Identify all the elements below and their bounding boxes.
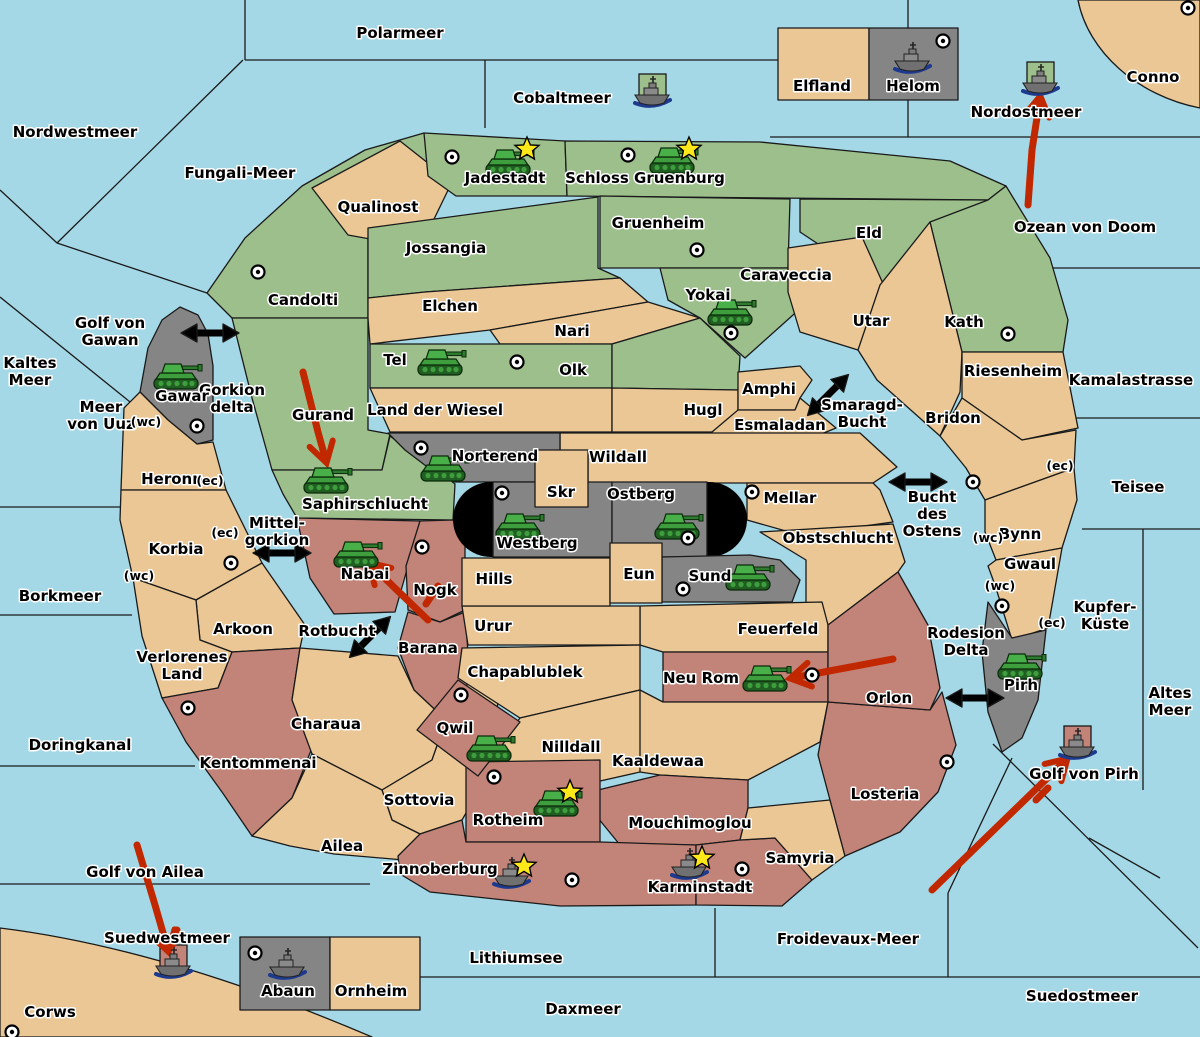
label-utar: Utar — [853, 312, 890, 330]
label-chapablublek: Chapablublek — [467, 663, 583, 681]
label-westberg: Westberg — [496, 534, 577, 552]
label-kamalastrasse: Kamalastrasse — [1069, 371, 1193, 389]
label-barana: Barana — [398, 639, 458, 657]
label-hugl: Hugl — [683, 401, 722, 419]
coast-tag: (ec) — [1046, 458, 1073, 473]
city-marker-icon-nogk — [416, 541, 429, 554]
label-kaaldewaa: Kaaldewaa — [612, 752, 704, 770]
city-marker-icon-gruenheim — [691, 244, 704, 257]
label-mellar: Mellar — [764, 489, 818, 507]
label-froidevaux_meer: Froidevaux-Meer — [777, 930, 920, 948]
label-altes_meer: AltesMeer — [1148, 684, 1191, 719]
label-samyria: Samyria — [766, 849, 835, 867]
label-karminstadt: Karminstadt — [648, 878, 753, 896]
city-marker-icon-neu_rom — [806, 669, 819, 682]
label-golf_von_ailea: Golf von Ailea — [86, 863, 204, 881]
label-suedwestmeer: Suedwestmeer — [104, 929, 230, 947]
city-marker-icon-bridon — [967, 476, 980, 489]
label-mouchimoglou: Mouchimoglou — [628, 814, 751, 832]
city-marker-icon-sund — [677, 583, 690, 596]
city-marker-icon-kentommenai — [182, 702, 195, 715]
label-schloss_gruenburg: Schloss Gruenburg — [565, 169, 725, 187]
label-lithiumsee: Lithiumsee — [469, 949, 562, 967]
label-fungali_meer: Fungali-Meer — [185, 164, 296, 182]
label-conno: Conno — [1127, 68, 1180, 86]
label-skr: Skr — [547, 483, 576, 501]
coast-tag: (ec) — [211, 525, 238, 540]
city-marker-icon-kath — [1002, 328, 1015, 341]
label-norterend: Norterend — [452, 447, 539, 465]
label-bynn: Bynn — [999, 525, 1042, 543]
label-esmaladan: Esmaladan — [734, 416, 826, 434]
label-nogk: Nogk — [413, 581, 458, 599]
city-marker-icon-corws — [6, 1026, 19, 1037]
label-wildall: Wildall — [589, 448, 647, 466]
coast-tag: (wc) — [985, 578, 1015, 593]
coast-tag: (wc) — [131, 414, 161, 429]
label-feuerfeld: Feuerfeld — [738, 620, 819, 638]
territory-rotheim[interactable] — [466, 760, 600, 842]
label-mittel_gorkion: Mittel-gorkion — [245, 514, 310, 549]
label-candolti: Candolti — [268, 291, 338, 309]
label-charaua: Charaua — [291, 715, 361, 733]
label-sottovia: Sottovia — [384, 791, 455, 809]
label-amphi: Amphi — [742, 380, 796, 398]
city-marker-icon-abaun — [249, 947, 262, 960]
city-marker-icon-karminstadt — [736, 863, 749, 876]
label-losteria: Losteria — [851, 785, 920, 803]
game-map: PolarmeerCobaltmeerNordwestmeerFungali-M… — [0, 0, 1200, 1037]
label-golf_von_pirh: Golf von Pirh — [1029, 765, 1139, 783]
label-elchen: Elchen — [422, 297, 478, 315]
label-ornheim: Ornheim — [335, 982, 407, 1000]
label-bridon: Bridon — [925, 409, 981, 427]
label-nilldall: Nilldall — [541, 738, 600, 756]
label-rotheim: Rotheim — [473, 811, 544, 829]
label-riesenheim: Riesenheim — [964, 362, 1062, 380]
label-kaltes_meer: KaltesMeer — [3, 354, 56, 389]
label-teisee: Teisee — [1112, 478, 1165, 496]
label-arkoon: Arkoon — [213, 620, 273, 638]
label-corws: Corws — [24, 1003, 76, 1021]
city-marker-icon-korbia — [225, 557, 238, 570]
label-gwaul: Gwaul — [1004, 555, 1056, 573]
label-jossangia: Jossangia — [405, 239, 487, 257]
city-marker-icon-pirh — [996, 600, 1009, 613]
label-eld: Eld — [856, 224, 882, 242]
label-yokai: Yokai — [684, 286, 730, 304]
label-caraveccia: Caraveccia — [740, 266, 832, 284]
label-tel: Tel — [383, 351, 407, 369]
label-qualinost: Qualinost — [338, 198, 419, 216]
city-marker-icon-jadestadt — [446, 151, 459, 164]
coast-tag: (ec) — [1038, 615, 1065, 630]
label-kupfer_kueste: Kupfer-Küste — [1073, 598, 1136, 633]
label-cobaltmeer: Cobaltmeer — [513, 89, 611, 107]
label-borkmeer: Borkmeer — [19, 587, 102, 605]
label-nabai: Nabai — [341, 565, 390, 583]
label-elfland: Elfland — [793, 77, 851, 95]
city-marker-icon-norterend — [415, 442, 428, 455]
label-korbia: Korbia — [148, 540, 203, 558]
label-jadestadt: Jadestadt — [464, 169, 546, 187]
city-marker-icon-qwil — [455, 689, 468, 702]
label-nordostmeer: Nordostmeer — [971, 103, 1082, 121]
label-pirh: Pirh — [1004, 676, 1038, 694]
label-qwil: Qwil — [437, 719, 474, 737]
label-urur: Urur — [474, 617, 512, 635]
city-marker-icon-mellar — [746, 486, 759, 499]
label-suedostmeer: Suedostmeer — [1026, 987, 1139, 1005]
city-marker-icon-westberg — [496, 487, 509, 500]
label-orlon: Orlon — [866, 689, 912, 707]
label-doringkanal: Doringkanal — [29, 736, 132, 754]
label-polarmeer: Polarmeer — [356, 24, 444, 42]
label-eun: Eun — [623, 565, 655, 583]
label-golf_von_gawan: Golf vonGawan — [75, 314, 145, 349]
label-ozean_von_doom: Ozean von Doom — [1014, 218, 1156, 236]
coast-tag: (wc) — [973, 530, 1003, 545]
label-olk: Olk — [559, 361, 588, 379]
label-nari: Nari — [554, 322, 589, 340]
city-marker-icon-ostberg — [682, 532, 695, 545]
territory-mouchimoglou[interactable] — [598, 775, 748, 845]
coast-tag: (wc) — [124, 568, 154, 583]
label-ostberg: Ostberg — [607, 485, 675, 503]
label-daxmeer: Daxmeer — [545, 1000, 621, 1018]
label-heronn: Heronn — [141, 470, 203, 488]
label-kath: Kath — [944, 313, 984, 331]
label-saphirschlucht: Saphirschlucht — [302, 495, 428, 513]
label-gurand: Gurand — [292, 406, 354, 424]
city-marker-icon-gawar — [191, 420, 204, 433]
label-hills: Hills — [476, 570, 513, 588]
city-marker-icon-conno — [1182, 2, 1195, 15]
label-rotbucht: Rotbucht — [298, 622, 375, 640]
city-marker-icon-zinnoberburg — [566, 874, 579, 887]
city-marker-icon-schloss_gruenburg — [622, 149, 635, 162]
label-land_der_wiesel: Land der Wiesel — [367, 401, 503, 419]
city-marker-icon-tel — [511, 356, 524, 369]
label-helom: Helom — [886, 77, 940, 95]
label-nordwestmeer: Nordwestmeer — [13, 123, 138, 141]
label-ailea: Ailea — [321, 837, 363, 855]
city-marker-icon-helom — [937, 35, 950, 48]
coast-tag: (ec) — [196, 473, 223, 488]
city-marker-icon-losteria — [941, 756, 954, 769]
label-abaun: Abaun — [261, 982, 315, 1000]
city-marker-icon-rotheim — [488, 771, 501, 784]
label-neu_rom: Neu Rom — [663, 669, 739, 687]
label-gawar: Gawar — [155, 387, 209, 405]
city-marker-icon-candolti — [252, 266, 265, 279]
label-gruenheim: Gruenheim — [612, 214, 705, 232]
label-kentommenai: Kentommenai — [199, 754, 316, 772]
label-sund: Sund — [689, 567, 732, 585]
label-obstschlucht: Obstschlucht — [783, 529, 894, 547]
label-zinnoberburg: Zinnoberburg — [382, 860, 498, 878]
city-marker-icon-yokai — [725, 327, 738, 340]
